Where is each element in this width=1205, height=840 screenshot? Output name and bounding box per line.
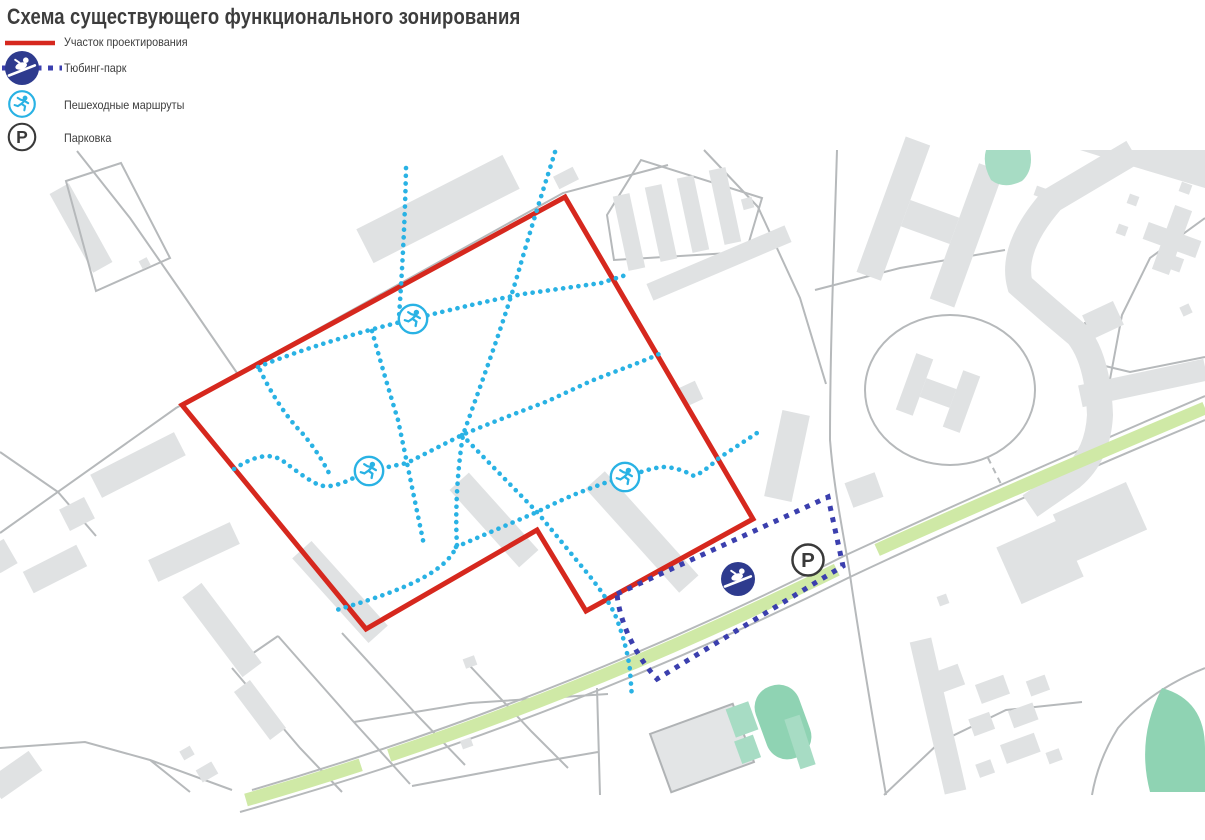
building <box>23 545 87 594</box>
building <box>937 594 950 607</box>
markers-layer <box>355 305 824 596</box>
building <box>1179 303 1192 316</box>
site-boundary-outline <box>182 197 753 629</box>
building <box>845 472 884 507</box>
building <box>1127 194 1140 207</box>
buildings-layer <box>0 137 1205 800</box>
green-area <box>1145 688 1205 792</box>
building <box>182 583 261 677</box>
building <box>463 655 478 669</box>
road <box>815 250 1005 290</box>
building <box>677 175 709 253</box>
building <box>741 197 754 210</box>
building <box>1116 224 1129 237</box>
building <box>857 137 1004 308</box>
building <box>709 167 741 245</box>
building <box>0 751 42 799</box>
building <box>234 680 286 740</box>
parking-icon <box>792 544 823 575</box>
building <box>0 539 18 573</box>
map-canvas: P <box>0 0 1205 840</box>
building <box>356 155 519 263</box>
green-area <box>985 150 1031 185</box>
building <box>90 432 186 498</box>
tubing-park-icon <box>721 562 755 596</box>
route-path <box>260 370 331 477</box>
building <box>179 746 194 761</box>
building <box>553 167 579 189</box>
route-path <box>258 275 626 367</box>
building <box>910 638 967 795</box>
building <box>148 522 240 582</box>
building <box>586 471 699 592</box>
building <box>764 410 810 502</box>
pedestrian-route-icon <box>355 457 383 485</box>
pedestrian-route-icon <box>611 463 639 491</box>
pedestrian-route-icon <box>399 305 427 333</box>
parcel-line <box>232 633 608 795</box>
route-path <box>234 354 659 486</box>
building <box>50 183 113 272</box>
building <box>896 353 980 433</box>
building <box>196 761 219 782</box>
building <box>59 497 95 531</box>
building <box>645 184 677 262</box>
route-path <box>372 331 424 545</box>
